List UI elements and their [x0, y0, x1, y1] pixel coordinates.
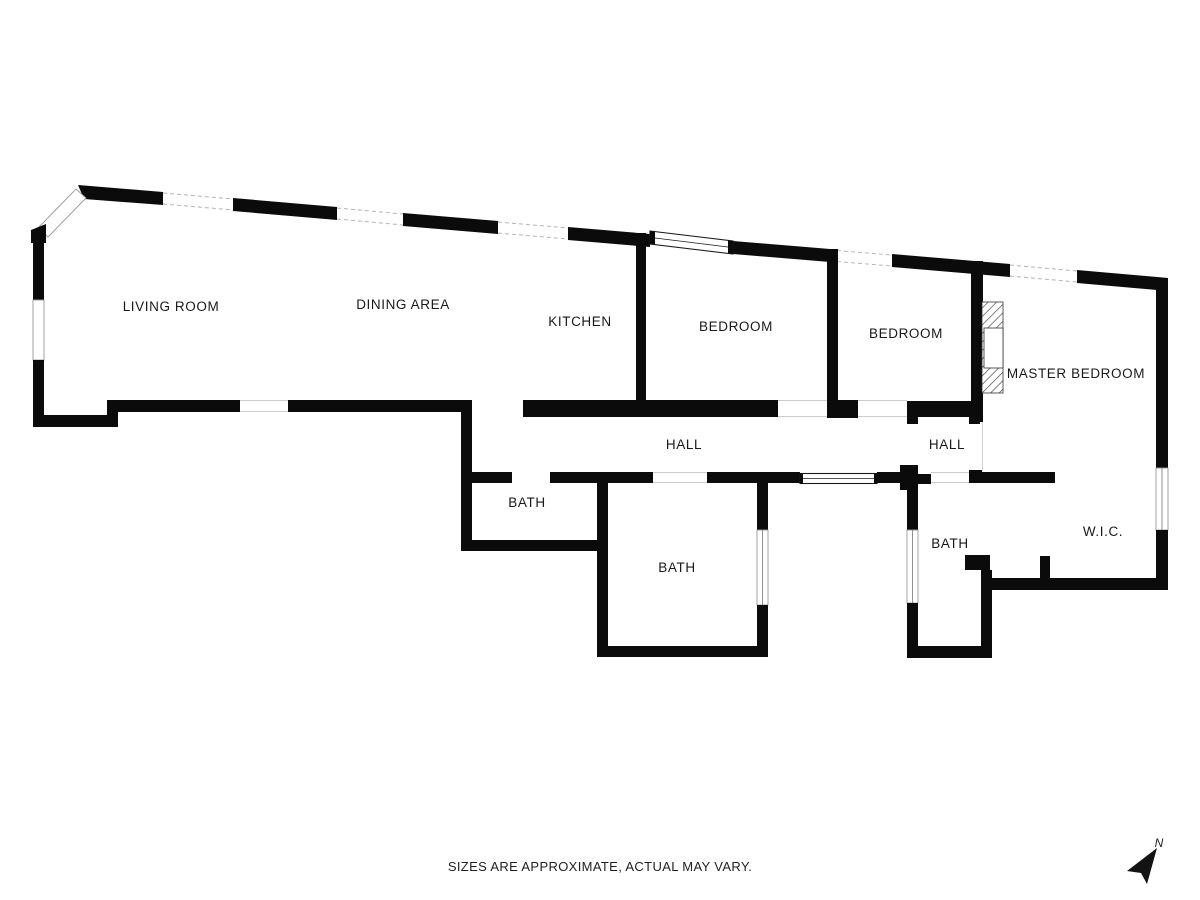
left-wall [33, 240, 44, 300]
hall2-top-jamb [907, 417, 918, 424]
bedroom2-master-wall [971, 261, 983, 422]
room-label-bedroom-2: BEDROOM [869, 326, 943, 341]
wic-bottom-wall [981, 578, 1168, 590]
top-wall-segment [1077, 270, 1168, 291]
bath2-left-wall [597, 482, 608, 657]
bedroom1-bedroom2-wall [827, 249, 838, 400]
interior-walls [461, 233, 1168, 658]
hall1-bottom-wall [550, 472, 653, 483]
room-label-master-bedroom: MASTER BEDROOM [1007, 366, 1145, 381]
bath3-bottom-wall [907, 646, 992, 658]
bath3-left-wall [907, 483, 918, 530]
bath3-corner-block [965, 555, 990, 570]
right-wall [1156, 278, 1168, 468]
bath2-right-wall [757, 482, 768, 530]
room-label-bath-1: BATH [508, 495, 545, 510]
hall-top-wall [523, 400, 778, 417]
room-label-living-room: LIVING ROOM [123, 299, 220, 314]
room-label-kitchen: KITCHEN [548, 314, 611, 329]
hall2-corner-arm [918, 474, 931, 484]
room-label-bath-2: BATH [658, 560, 695, 575]
living-bottom-wall [107, 400, 240, 412]
bottom-left-wall [33, 415, 118, 427]
bath1-bottom-wall [461, 540, 597, 551]
room-label-hall-2: HALL [929, 437, 965, 452]
kitchen-bedroom1-wall [636, 233, 646, 400]
hall1-bottom-wall [461, 472, 512, 483]
floor-plan-drawing: LIVING ROOMDINING AREAKITCHENBEDROOMBEDR… [0, 0, 1200, 900]
left-wall-window [33, 300, 44, 360]
top-wall-segment [78, 185, 163, 205]
hall1-bottom-wall [707, 472, 800, 483]
dining-bottom-wall [288, 400, 467, 412]
disclaimer-text: SIZES ARE APPROXIMATE, ACTUAL MAY VARY. [0, 859, 1200, 874]
room-label-bedroom-1: BEDROOM [699, 319, 773, 334]
room-label-dining-area: DINING AREA [356, 297, 450, 312]
bath2-right-wall [757, 605, 768, 657]
bedroom1-top-window [650, 231, 733, 254]
floor-plan-page: LIVING ROOMDINING AREAKITCHENBEDROOMBEDR… [0, 0, 1200, 900]
top-wall-segment [892, 254, 1010, 277]
bedroom-divider-block [827, 400, 858, 418]
top-wall-segment [403, 213, 498, 234]
room-label-hall-1: HALL [666, 437, 702, 452]
wic-top-wall [969, 472, 1055, 483]
top-wall-segment [733, 241, 830, 262]
room-label-wic: W.I.C. [1083, 524, 1123, 539]
bath2-bottom-wall [597, 646, 768, 657]
closet [982, 302, 1003, 393]
hall2-top-wall [907, 401, 980, 417]
room-label-bath-3: BATH [931, 536, 968, 551]
hall1-bottom-wall [877, 472, 903, 483]
top-wall-segment [233, 198, 337, 220]
north-label: N [1155, 836, 1164, 850]
